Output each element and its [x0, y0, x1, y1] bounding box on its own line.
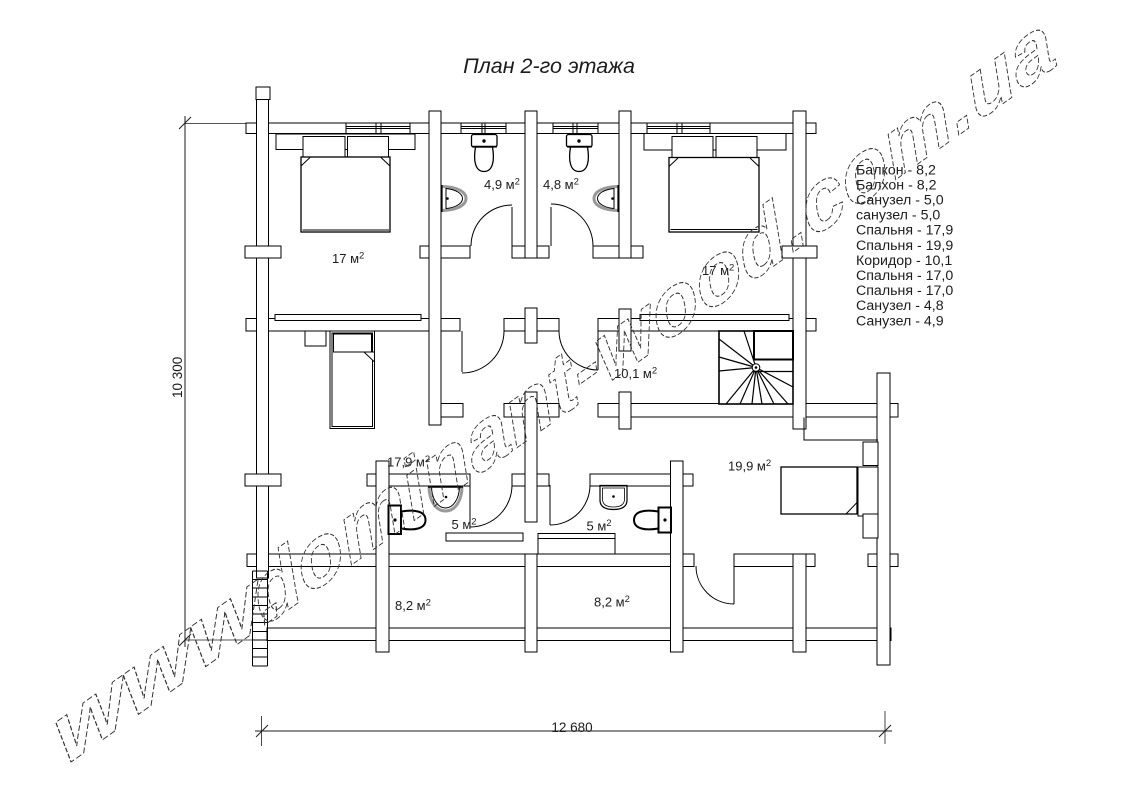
svg-text:Спальня - 17,0: Спальня - 17,0: [856, 268, 953, 284]
svg-text:Санузел - 4,8: Санузел - 4,8: [856, 298, 944, 314]
svg-text:План 2-го этажа: План 2-го этажа: [463, 54, 635, 78]
svg-text:Спальня - 19,9: Спальня - 19,9: [856, 238, 953, 254]
svg-text:Спальня - 17,0: Спальня - 17,0: [856, 283, 953, 299]
svg-text:12 680: 12 680: [551, 720, 592, 735]
svg-text:Коридор - 10,1: Коридор - 10,1: [856, 253, 952, 269]
svg-text:4,9 м2: 4,9 м2: [484, 177, 520, 193]
svg-text:Спальня - 17,9: Спальня - 17,9: [856, 223, 953, 239]
svg-text:10 300: 10 300: [170, 357, 185, 398]
svg-text:19,9 м2: 19,9 м2: [728, 458, 771, 474]
svg-text:Санузел - 4,9: Санузел - 4,9: [856, 313, 944, 329]
svg-text:4,8 м2: 4,8 м2: [543, 177, 579, 193]
svg-text:8,2 м2: 8,2 м2: [395, 598, 431, 614]
svg-text:8,2 м2: 8,2 м2: [594, 594, 630, 610]
